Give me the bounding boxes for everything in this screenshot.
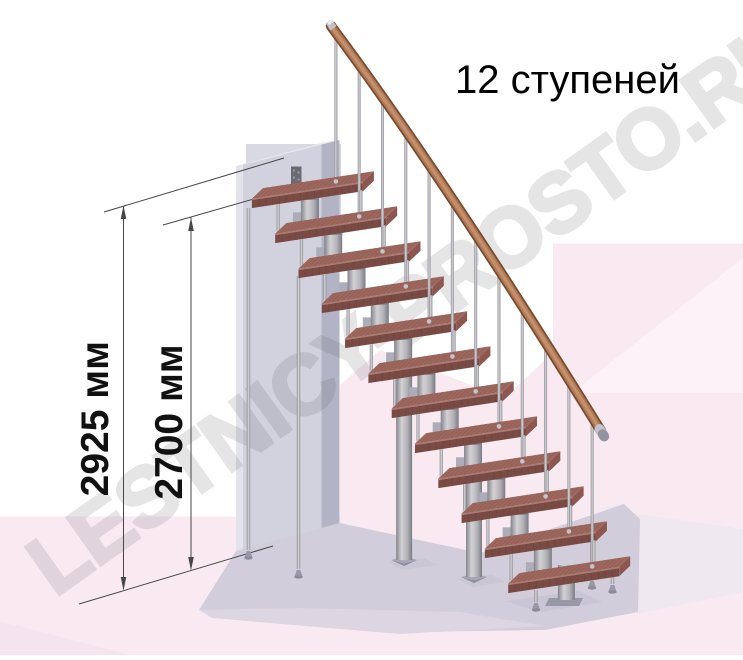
svg-text:2925 мм: 2925 мм bbox=[74, 341, 117, 496]
svg-text:12 ступеней: 12 ступеней bbox=[455, 58, 680, 102]
svg-text:2700 мм: 2700 мм bbox=[148, 344, 191, 499]
